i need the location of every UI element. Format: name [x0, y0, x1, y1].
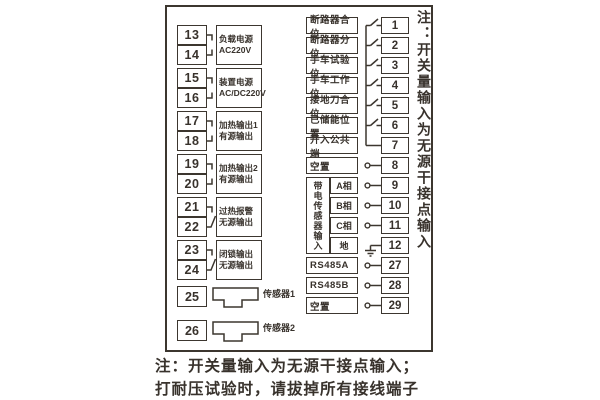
phase-a-label: A相	[330, 177, 358, 194]
terminal-21: 21	[177, 197, 207, 217]
terminal-6: 6	[381, 117, 409, 134]
terminal-20: 20	[177, 174, 207, 194]
terminal-11: 11	[381, 217, 409, 234]
left-pair-label-2: 加热输出1有源输出	[216, 111, 262, 151]
terminal-18: 18	[177, 131, 207, 151]
terminal-22: 22	[177, 217, 207, 237]
terminal-14: 14	[177, 45, 207, 65]
terminal-7: 7	[381, 137, 409, 154]
terminal-28: 28	[381, 277, 409, 294]
terminal-25: 25	[177, 286, 207, 307]
terminal-24: 24	[177, 260, 207, 280]
phase-b-label: B相	[330, 197, 358, 214]
terminal-9: 9	[381, 177, 409, 194]
earth-label: 地	[330, 237, 358, 254]
left-pair-label-1: 装置电源AC/DC220V	[216, 68, 262, 108]
terminal-12: 12	[381, 237, 409, 254]
rs485b-label: RS485B	[306, 277, 358, 294]
hv-sensor-group-label: 带电传感器输入	[306, 177, 330, 254]
bottom-note-line-1: 注：开关量输入为无源干接点输入；	[155, 354, 485, 376]
phase-c-label: C相	[330, 217, 358, 234]
spare-label-29: 空置	[306, 297, 358, 314]
terminal-29: 29	[381, 297, 409, 314]
left-pair-label-5: 闭锁输出无源输出	[216, 240, 262, 280]
terminal-27: 27	[381, 257, 409, 274]
side-note-vertical: 注：开关量输入为无源干接点输入	[408, 10, 434, 346]
bottom-note-line-2: 打耐压试验时，请拔掉所有接线端子	[155, 377, 485, 399]
terminal-3: 3	[381, 57, 409, 74]
sensor-2-label: 传感器2	[263, 321, 323, 334]
terminal-13: 13	[177, 25, 207, 45]
input-label-row-8: 空置	[306, 157, 358, 174]
terminal-5: 5	[381, 97, 409, 114]
left-pair-label-4: 过热报警无源输出	[216, 197, 262, 237]
terminal-15: 15	[177, 68, 207, 88]
terminal-26: 26	[177, 320, 207, 341]
terminal-23: 23	[177, 240, 207, 260]
terminal-19: 19	[177, 154, 207, 174]
left-pair-label-0: 负载电源AC220V	[216, 25, 262, 65]
rs485a-label: RS485A	[306, 257, 358, 274]
terminal-8: 8	[381, 157, 409, 174]
terminal-10: 10	[381, 197, 409, 214]
input-label-row-7: 开入公共端	[306, 137, 358, 154]
terminal-2: 2	[381, 37, 409, 54]
terminal-16: 16	[177, 88, 207, 108]
terminal-17: 17	[177, 111, 207, 131]
terminal-4: 4	[381, 77, 409, 94]
terminal-1: 1	[381, 17, 409, 34]
left-pair-label-3: 加热输出2有源输出	[216, 154, 262, 194]
